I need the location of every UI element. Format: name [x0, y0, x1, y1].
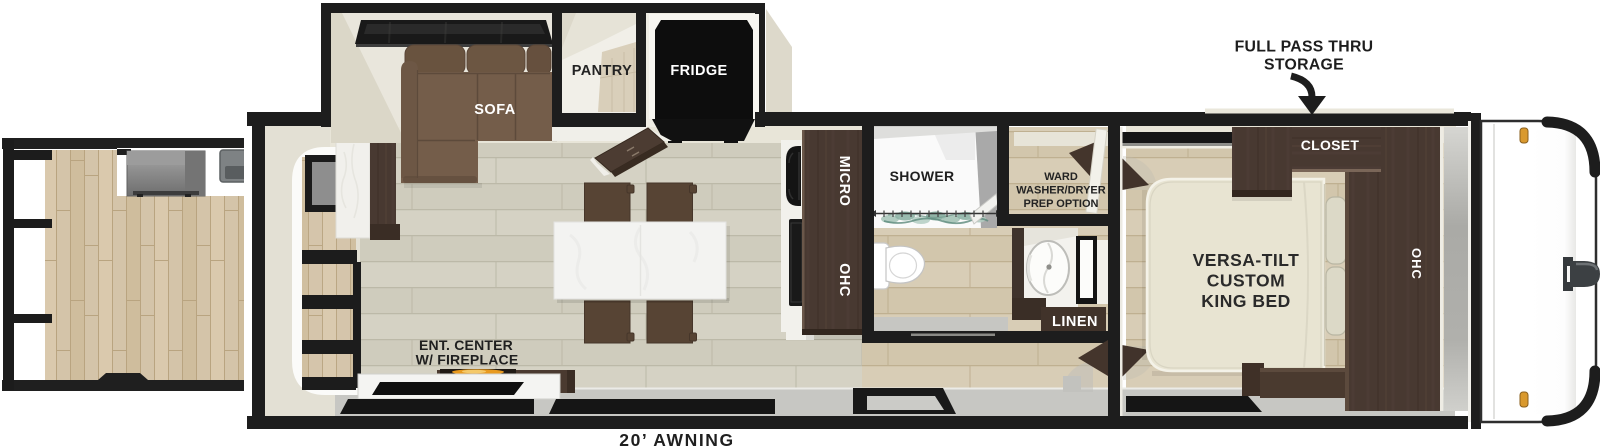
- svg-text:OHC: OHC: [1409, 248, 1424, 280]
- svg-text:20’ AWNING: 20’ AWNING: [619, 430, 735, 448]
- svg-text:SHOWER: SHOWER: [890, 168, 955, 184]
- svg-text:SOFA: SOFA: [474, 102, 516, 118]
- svg-text:KING BED: KING BED: [1201, 291, 1291, 311]
- svg-text:VERSA-TILT: VERSA-TILT: [1193, 250, 1300, 270]
- svg-text:PREP OPTION: PREP OPTION: [1024, 198, 1099, 210]
- svg-text:WARD: WARD: [1044, 171, 1078, 183]
- svg-text:MICRO: MICRO: [836, 156, 852, 207]
- svg-text:LINEN: LINEN: [1052, 314, 1098, 330]
- svg-text:WASHER/DRYER: WASHER/DRYER: [1016, 185, 1105, 197]
- svg-text:FULL PASS THRU: FULL PASS THRU: [1235, 39, 1374, 56]
- svg-text:PANTRY: PANTRY: [572, 63, 632, 79]
- svg-text:W/ FIREPLACE: W/ FIREPLACE: [416, 352, 519, 368]
- svg-text:OHC: OHC: [836, 263, 852, 297]
- svg-text:STORAGE: STORAGE: [1264, 57, 1344, 74]
- svg-text:CUSTOM: CUSTOM: [1207, 271, 1286, 291]
- svg-text:FRIDGE: FRIDGE: [670, 63, 727, 79]
- svg-text:CLOSET: CLOSET: [1301, 137, 1360, 153]
